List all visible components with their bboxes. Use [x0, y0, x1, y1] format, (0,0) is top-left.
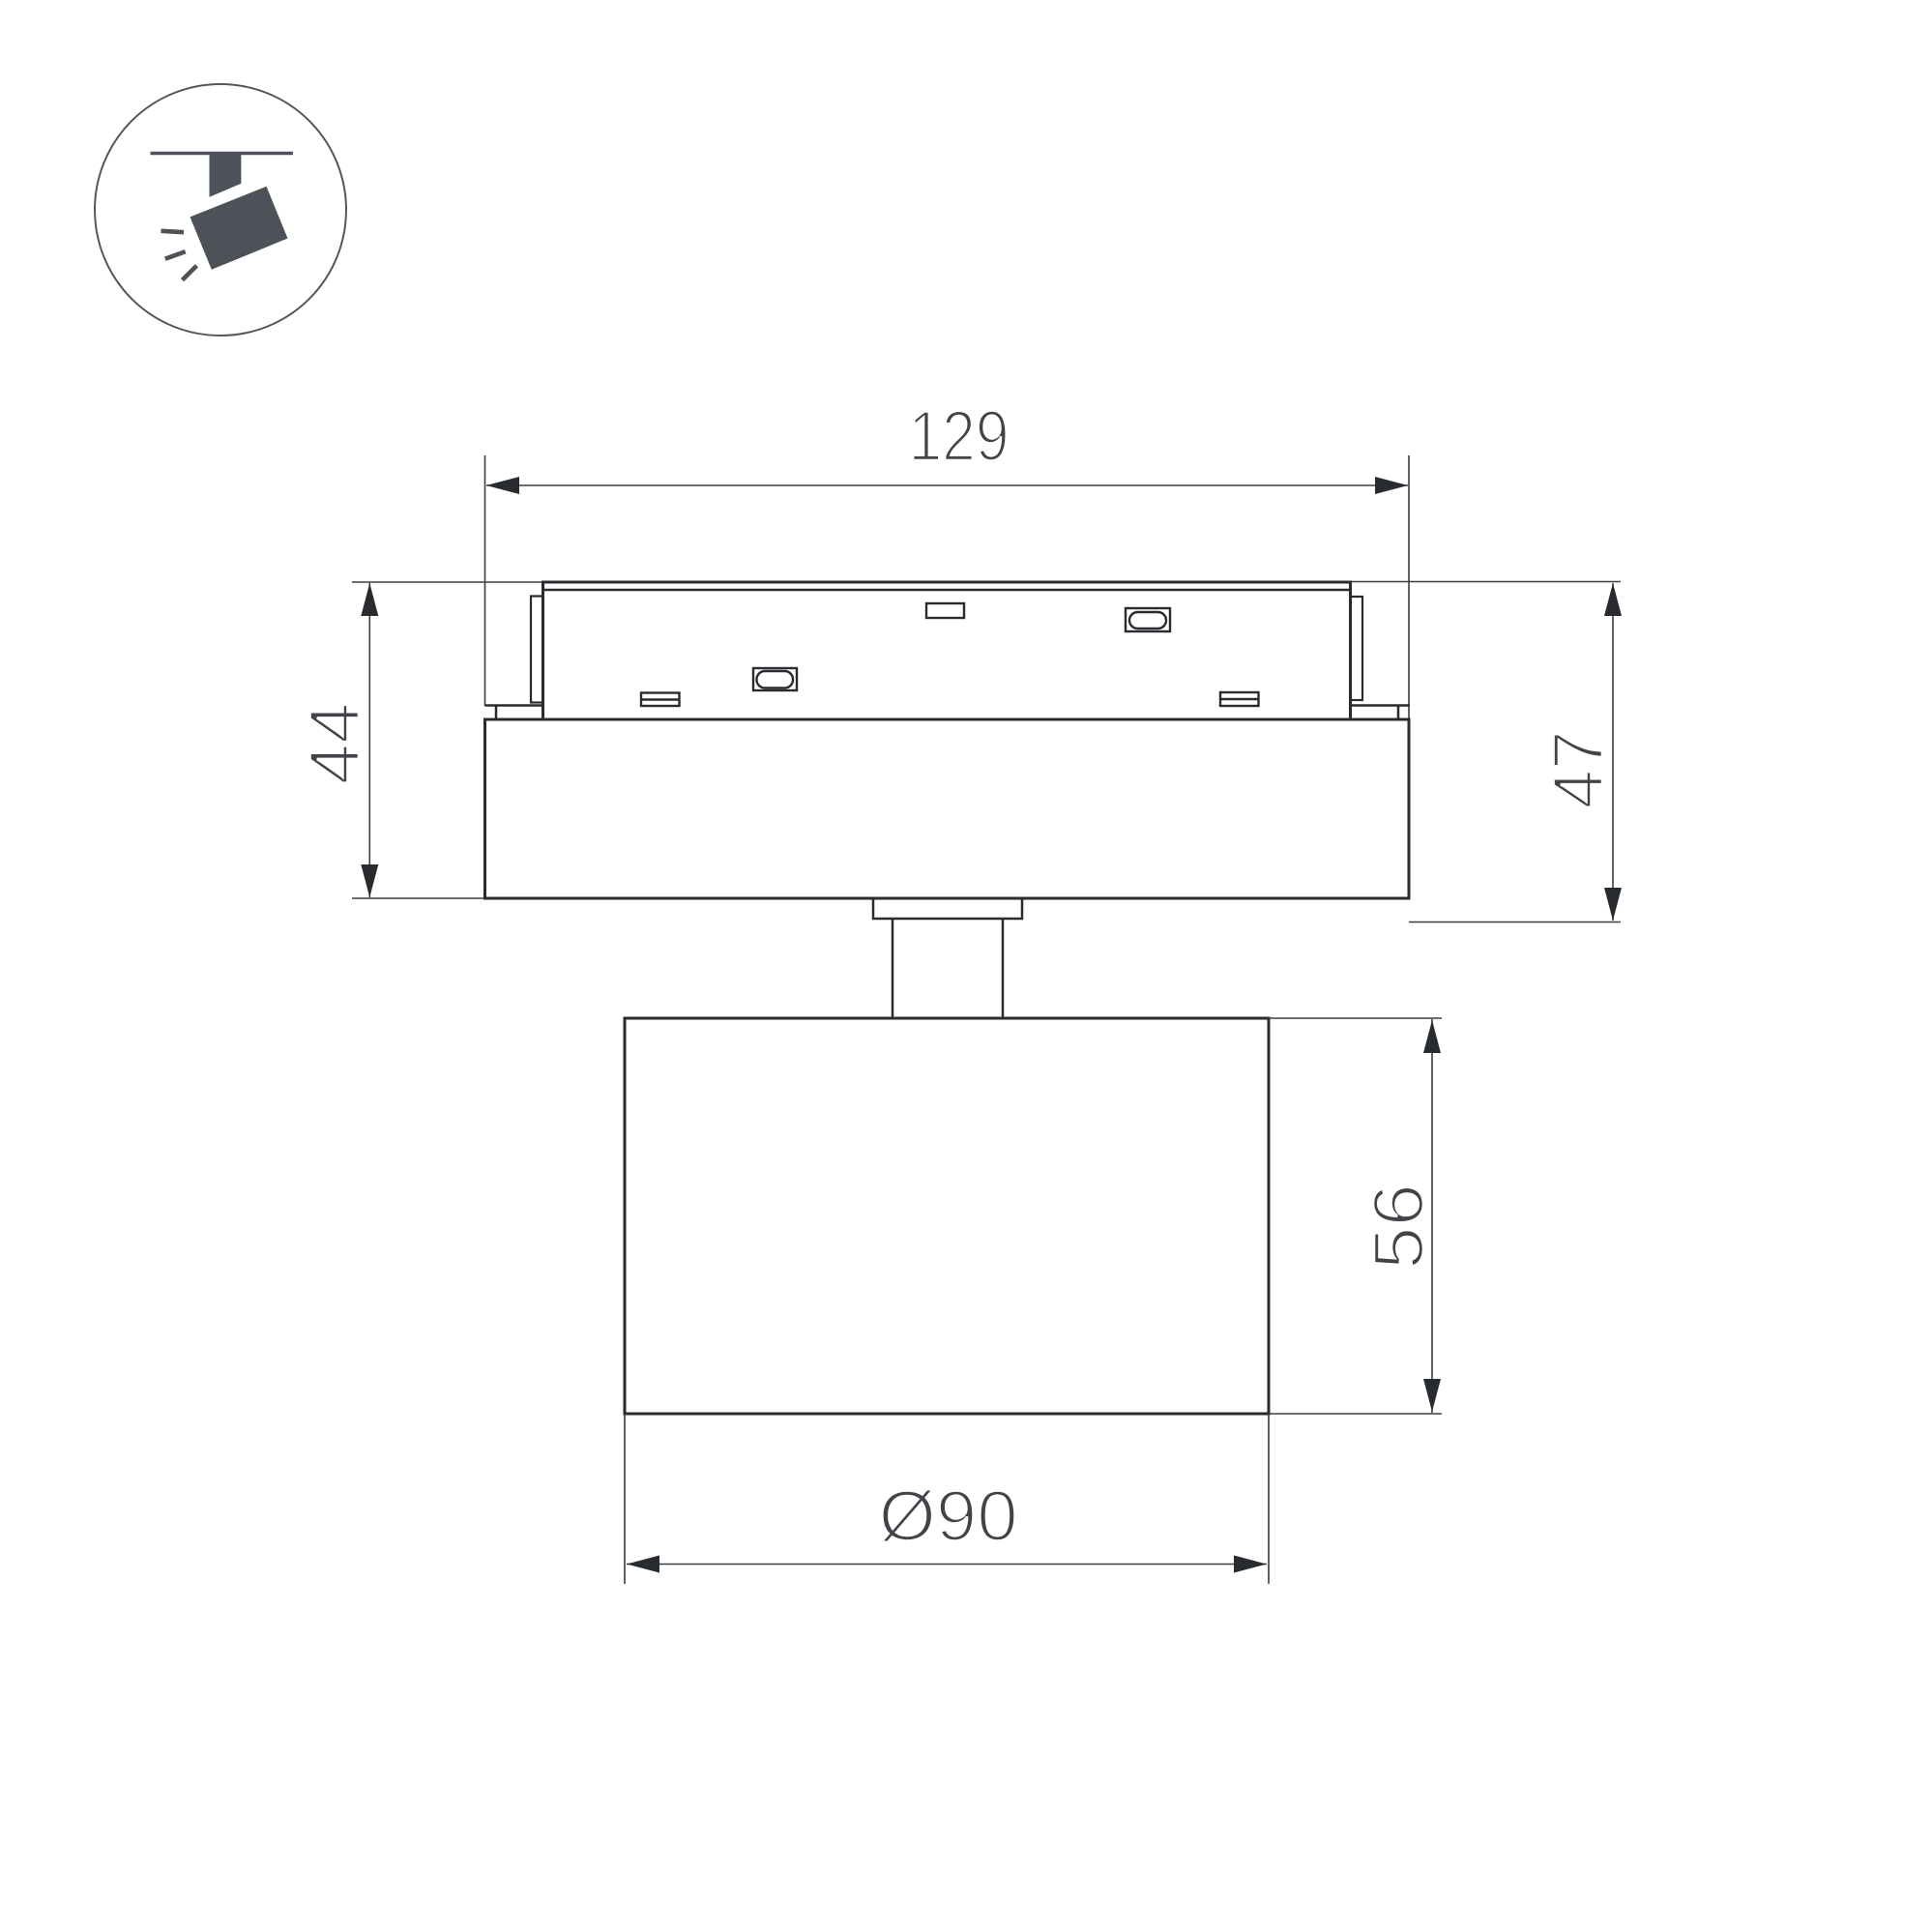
svg-text:Ø90: Ø90: [879, 1476, 1018, 1556]
svg-text:56: 56: [1359, 1184, 1439, 1270]
svg-text:44: 44: [294, 703, 374, 785]
svg-text:47: 47: [1537, 731, 1618, 809]
svg-text:129: 129: [909, 395, 1010, 476]
